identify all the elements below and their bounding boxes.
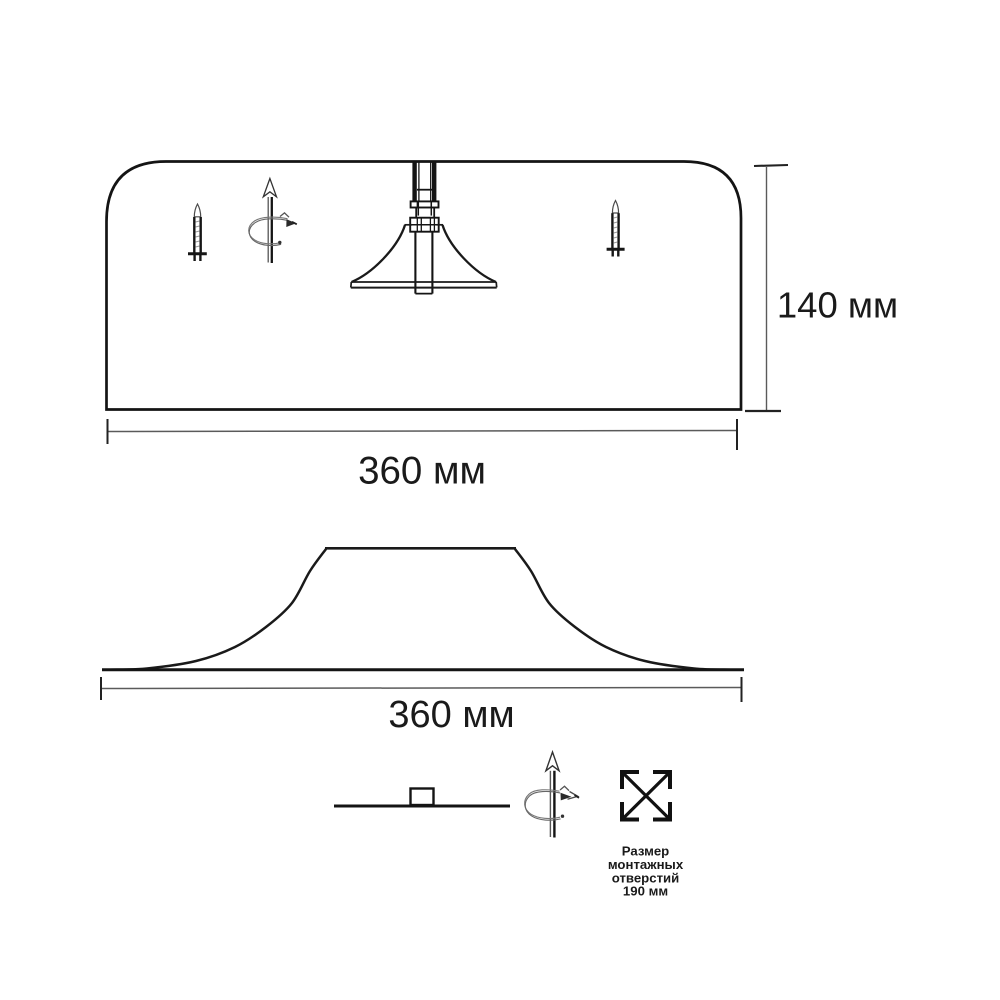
svg-text:140 мм: 140 мм: [777, 285, 898, 326]
svg-text:190 мм: 190 мм: [623, 884, 668, 899]
svg-text:360 мм: 360 мм: [388, 694, 514, 736]
svg-text:360 мм: 360 мм: [358, 450, 486, 493]
